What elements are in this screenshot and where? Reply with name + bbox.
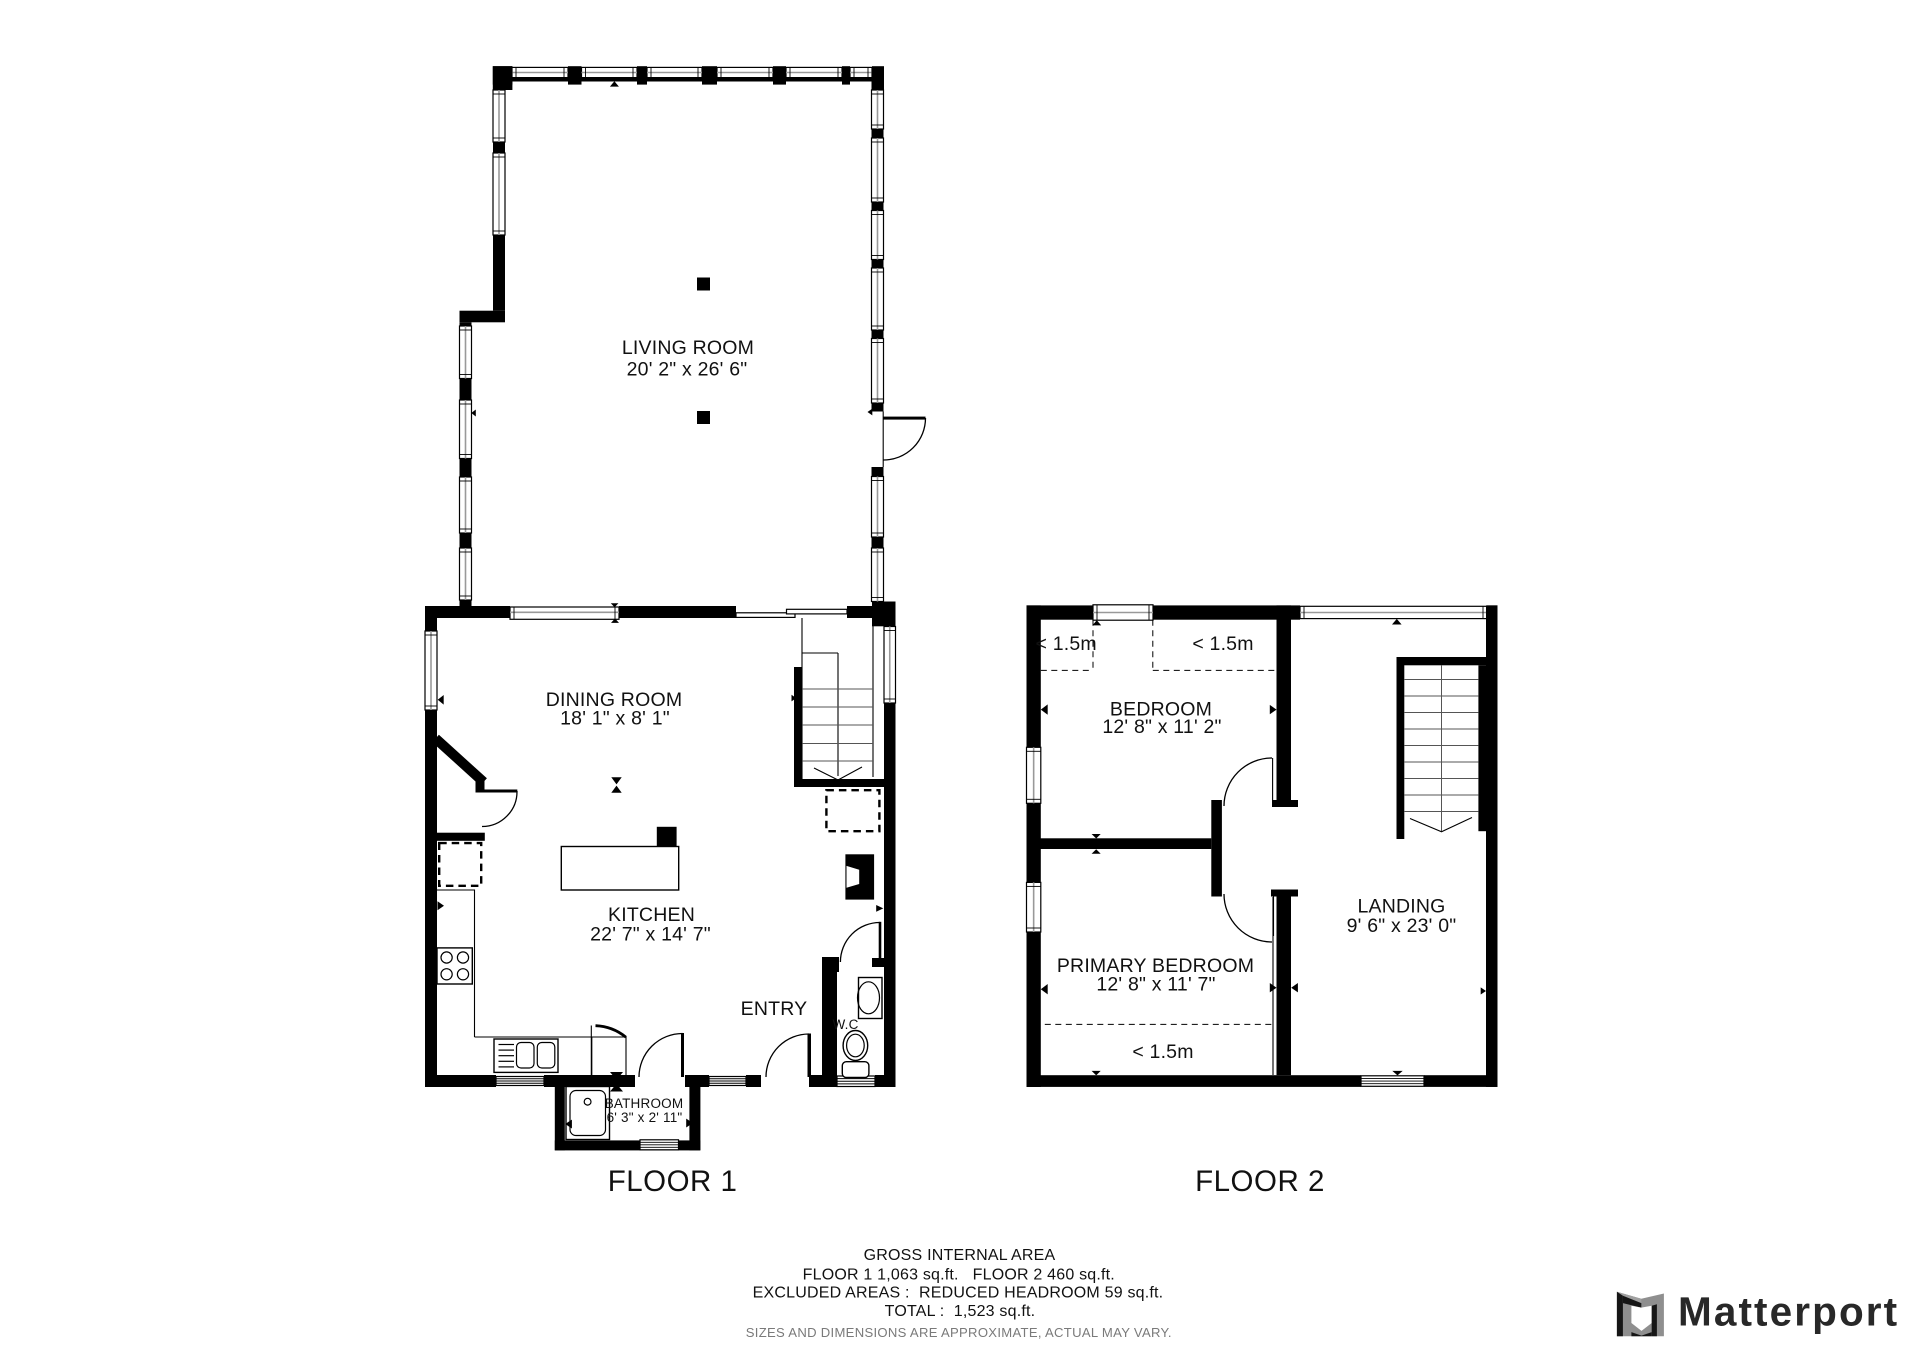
svg-text:BATHROOM: BATHROOM bbox=[605, 1096, 684, 1111]
svg-text:< 1.5m: < 1.5m bbox=[1132, 1041, 1193, 1063]
svg-text:W.C: W.C bbox=[832, 1017, 858, 1032]
svg-text:Matterport: Matterport bbox=[1678, 1289, 1899, 1335]
svg-text:ENTRY: ENTRY bbox=[741, 998, 808, 1020]
svg-text:18' 1" x 8' 1": 18' 1" x 8' 1" bbox=[560, 707, 670, 729]
svg-text:FLOOR 1 1,063 sq.ft. FLOOR 2: FLOOR 1 1,063 sq.ft. FLOOR 2 460 sq.ft. bbox=[803, 1267, 1115, 1284]
svg-text:LIVING ROOM: LIVING ROOM bbox=[622, 337, 754, 359]
svg-text:12' 8" x 11' 7": 12' 8" x 11' 7" bbox=[1096, 974, 1215, 996]
svg-text:12' 8" x 11' 2": 12' 8" x 11' 2" bbox=[1102, 716, 1221, 738]
svg-text:TOTAL : 1,523 sq.ft.: TOTAL : 1,523 sq.ft. bbox=[885, 1303, 1036, 1320]
svg-text:EXCLUDED AREAS : REDUCED HEAD: EXCLUDED AREAS : REDUCED HEADROOM 59 sq.… bbox=[753, 1284, 1164, 1301]
svg-text:< 1.5m: < 1.5m bbox=[1192, 633, 1253, 655]
svg-text:GROSS INTERNAL AREA: GROSS INTERNAL AREA bbox=[864, 1247, 1056, 1264]
svg-text:< 1.5m: < 1.5m bbox=[1036, 633, 1097, 655]
svg-text:6' 3" x 2' 11": 6' 3" x 2' 11" bbox=[607, 1110, 683, 1125]
svg-text:FLOOR 2: FLOOR 2 bbox=[1195, 1165, 1325, 1198]
svg-text:9' 6" x 23' 0": 9' 6" x 23' 0" bbox=[1347, 915, 1457, 937]
svg-text:FLOOR 1: FLOOR 1 bbox=[608, 1165, 738, 1198]
svg-text:20' 2" x 26' 6": 20' 2" x 26' 6" bbox=[627, 359, 748, 381]
svg-text:22' 7" x 14' 7": 22' 7" x 14' 7" bbox=[590, 924, 711, 946]
svg-text:SIZES AND DIMENSIONS ARE APPRO: SIZES AND DIMENSIONS ARE APPROXIMATE, AC… bbox=[746, 1325, 1172, 1340]
